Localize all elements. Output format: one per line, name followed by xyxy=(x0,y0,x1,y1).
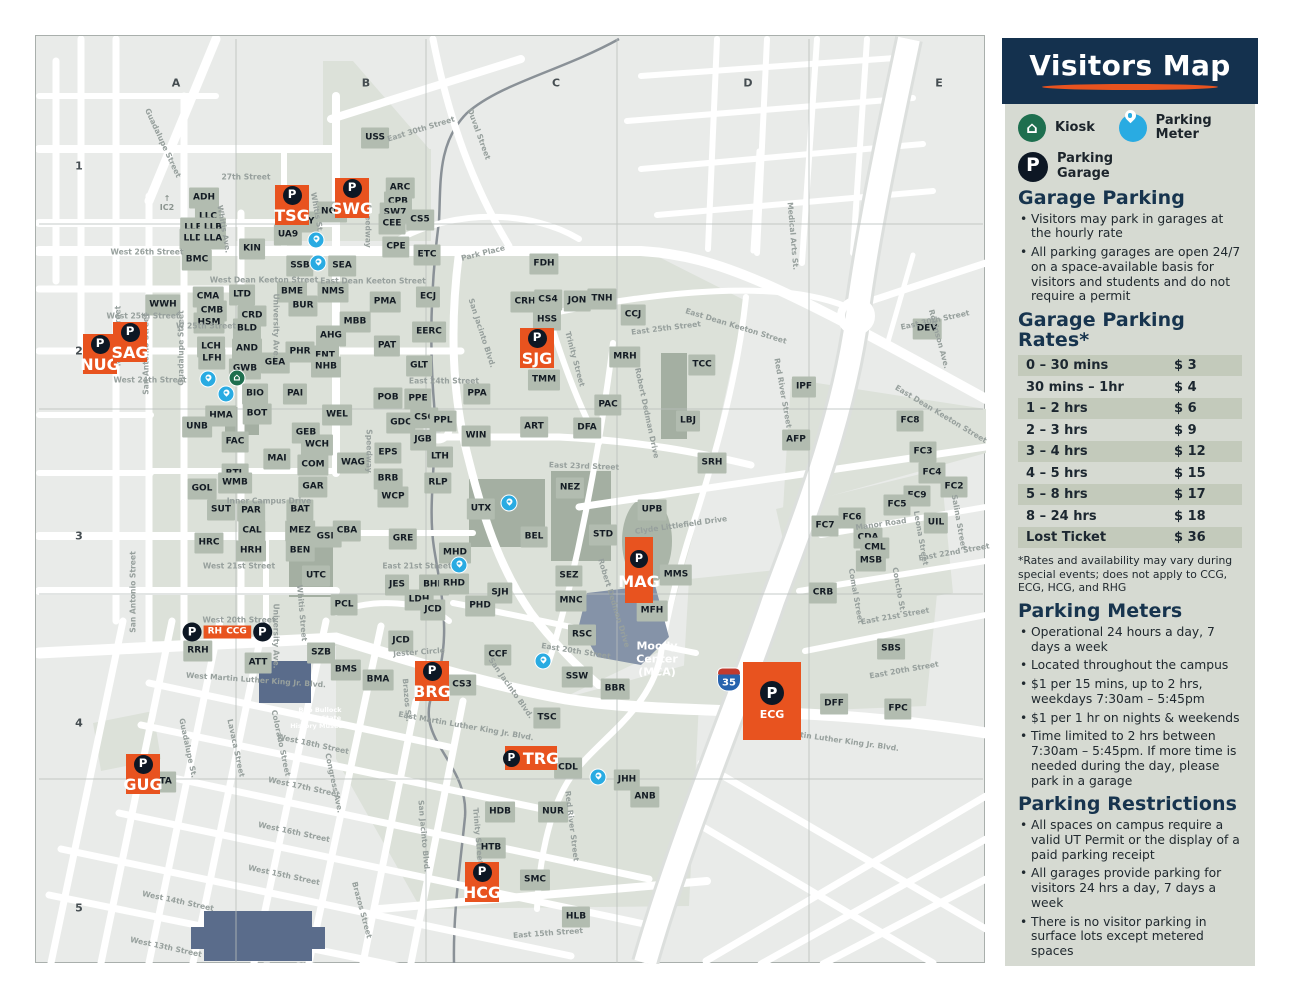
parking-meter-icon xyxy=(590,769,607,786)
building-label: FPC xyxy=(884,699,911,720)
garage-marker-hcg: PHCG xyxy=(465,862,499,902)
rate-row: 3 – 4 hrs$ 12 xyxy=(1018,441,1242,463)
building-label: FC5 xyxy=(883,495,910,516)
legend-item: ⌂Kiosk xyxy=(1018,114,1117,143)
building-label: BOT xyxy=(243,404,272,425)
building-label: PPL xyxy=(430,411,457,432)
building-label: CS4 xyxy=(534,290,562,311)
landmark-label: ↑ IC2 xyxy=(160,194,174,212)
building-label: COM xyxy=(297,455,328,476)
building-label: KIN xyxy=(239,239,265,260)
street-label: West 13th Street xyxy=(129,935,202,959)
garage-code-chip: CCG xyxy=(222,626,251,639)
rate-price: $ 9 xyxy=(1174,423,1234,438)
building-label: GOL xyxy=(188,479,217,500)
building-label: CS3 xyxy=(448,675,476,696)
rate-row: 5 – 8 hrs$ 17 xyxy=(1018,484,1242,506)
building-label: TMM xyxy=(528,370,560,391)
building-label: FC3 xyxy=(909,442,936,463)
street-label: West 16th Street xyxy=(257,820,330,844)
kiosk-icon: ⌂ xyxy=(1018,114,1046,142)
garage-code: SWG xyxy=(331,199,373,218)
parking-meter-icon xyxy=(535,653,552,670)
building-label: JCD xyxy=(420,600,445,621)
street-label: Red River Street xyxy=(563,790,581,861)
bullet-item: There is no visitor parking in surface l… xyxy=(1018,915,1242,959)
rate-duration: 4 – 5 hrs xyxy=(1026,466,1174,481)
building-label: EERC xyxy=(412,322,446,343)
legend-label: Parking Meter xyxy=(1156,114,1212,143)
building-label: PAC xyxy=(594,395,621,416)
garage-marker-ccg: CCGP xyxy=(222,623,272,642)
garage-rates-table: 0 – 30 mins$ 330 mins – 1hr$ 41 – 2 hrs$… xyxy=(1018,355,1242,549)
rate-row: 30 mins – 1hr$ 4 xyxy=(1018,376,1242,398)
rate-price: $ 17 xyxy=(1174,487,1234,502)
visitors-map-page: USSADHLLCLLELLBLLDLLABMCKINBWYUA9NOASSBS… xyxy=(0,0,1300,1005)
building-label: IPF xyxy=(792,377,816,398)
legend-label: Kiosk xyxy=(1055,121,1095,135)
parking-meter-icon xyxy=(501,495,518,512)
street-label: Congress Ave. xyxy=(323,752,344,813)
garage-code: BRG xyxy=(413,682,451,701)
rate-row: 1 – 2 hrs$ 6 xyxy=(1018,398,1242,420)
building-label: BLD xyxy=(233,319,261,340)
landmark-label: Texas State Capitol xyxy=(264,962,323,982)
bullet-item: Time limited to 2 hrs between 7:30am – 5… xyxy=(1018,729,1242,788)
parking-meter-icon xyxy=(310,255,327,272)
street-label: West 26th Street xyxy=(110,248,183,257)
building-label: WCP xyxy=(377,487,408,508)
street-label: Guadalupe St. xyxy=(177,717,198,778)
parking-garage-icon: P xyxy=(253,623,272,642)
garage-code: SJG xyxy=(522,349,553,368)
garage-parking-bullets: Visitors may park in garages at the hour… xyxy=(1018,212,1242,305)
street-label: East 30th Street xyxy=(386,114,456,143)
building-label: UNB xyxy=(182,417,212,438)
building-label: MNC xyxy=(555,591,586,612)
garage-marker-sjg: PSJG xyxy=(520,328,554,368)
grid-column-label: B xyxy=(362,77,370,90)
building-label: BIO xyxy=(242,384,268,405)
building-label: BUR xyxy=(288,296,317,317)
building-label: RRH xyxy=(183,641,212,662)
garage-code: TRG xyxy=(523,749,559,768)
grid-column-label: D xyxy=(743,77,752,90)
street-label: East 22nd Street xyxy=(918,541,990,562)
building-label: UTC xyxy=(302,566,330,587)
parking-garage-icon: P xyxy=(343,179,362,198)
building-label: SEA xyxy=(328,256,356,277)
street-label: Trinity Street xyxy=(563,330,586,387)
orange-swoosh-underline xyxy=(1040,83,1220,91)
shield-top-band xyxy=(717,668,741,675)
garage-code: HCG xyxy=(463,883,501,902)
rate-row: 4 – 5 hrs$ 15 xyxy=(1018,462,1242,484)
grid-row-label: 5 xyxy=(75,902,83,915)
parking-meter-icon xyxy=(1119,114,1147,142)
building-label: TCC xyxy=(688,355,715,376)
bullet-item: All parking garages are open 24/7 on a s… xyxy=(1018,245,1242,304)
building-label: GLT xyxy=(406,356,432,377)
building-label: BMC xyxy=(182,250,212,271)
landmark-label: Bob Bullock Texas State History Museum xyxy=(290,706,350,730)
street-label: Trinity Street xyxy=(471,807,485,864)
street-label: University Ave. xyxy=(272,604,281,669)
parking-garage-icon: P xyxy=(121,323,140,342)
garage-marker-mag: PMAG xyxy=(625,537,653,603)
legend-item: PParking Garage xyxy=(1018,152,1117,182)
building-label: BMA xyxy=(363,670,394,691)
parking-meter-icon xyxy=(308,232,325,249)
rate-duration: 1 – 2 hrs xyxy=(1026,401,1174,416)
building-label: PPA xyxy=(463,384,490,405)
garage-code: MAG xyxy=(618,572,659,591)
street-label: Inner Campus Drive xyxy=(227,497,312,506)
building-label: FC7 xyxy=(811,516,838,537)
rate-row: 8 – 24 hrs$ 18 xyxy=(1018,505,1242,527)
building-label: FC8 xyxy=(896,411,923,432)
rate-duration: 0 – 30 mins xyxy=(1026,358,1174,373)
parking-restrictions-bullets: All spaces on campus require a valid UT … xyxy=(1018,818,1242,959)
building-label: FDH xyxy=(529,254,558,275)
building-label: AHG xyxy=(316,326,346,347)
street-label: San Jacinto Blvd. xyxy=(487,656,536,720)
grid-row-label: 2 xyxy=(75,345,83,358)
street-label: Guadalupe Street xyxy=(143,107,183,179)
kiosk-icon: ⌂ xyxy=(229,370,246,387)
grid-column-label: E xyxy=(935,77,943,90)
building-label: UPB xyxy=(638,500,667,521)
garage-code: TSG xyxy=(274,206,310,225)
building-label: ART xyxy=(520,417,548,438)
building-label: ETC xyxy=(414,245,441,266)
building-label: PCL xyxy=(331,595,358,616)
rate-price: $ 6 xyxy=(1174,401,1234,416)
street-label: Brazos Street xyxy=(350,881,374,940)
street-label: Speedway xyxy=(365,429,374,473)
rate-duration: 5 – 8 hrs xyxy=(1026,487,1174,502)
building-label: POB xyxy=(373,388,402,409)
building-label: LBJ xyxy=(676,411,700,432)
bullet-item: Operational 24 hours a day, 7 days a wee… xyxy=(1018,625,1242,655)
street-label: Medical Arts St. xyxy=(786,202,801,271)
rate-price: $ 18 xyxy=(1174,509,1234,524)
building-label: CPE xyxy=(382,237,409,258)
parking-garage-icon: P xyxy=(473,863,492,882)
building-label: CEE xyxy=(379,214,406,235)
street-label: East 21st Street xyxy=(860,606,930,627)
building-label: UA9 xyxy=(274,225,302,246)
street-label: Salina Street xyxy=(950,494,969,550)
rate-row: Lost Ticket$ 36 xyxy=(1018,527,1242,549)
building-label: USS xyxy=(361,128,389,149)
building-label: NUR xyxy=(538,802,568,823)
building-label: FAC xyxy=(222,432,249,453)
bullet-item: Located throughout the campus xyxy=(1018,658,1242,673)
shield-route-number: 35 xyxy=(717,675,741,692)
building-label: ATT xyxy=(245,653,272,674)
building-label: HDB xyxy=(485,802,515,823)
street-label: West 21st Street xyxy=(203,562,275,571)
garage-marker-swg: PSWG xyxy=(335,178,369,218)
building-label: NHB xyxy=(311,357,341,378)
parking-meter-icon xyxy=(451,557,468,574)
building-label: JON xyxy=(564,291,591,312)
building-label: HLB xyxy=(562,907,590,928)
street-label: University Ave. xyxy=(272,294,281,359)
bullet-item: $1 per 15 mins, up to 2 hrs, weekdays 7:… xyxy=(1018,677,1242,707)
building-label: SBS xyxy=(877,639,905,660)
building-label: MRH xyxy=(609,347,640,368)
street-label: East Martin Luther King Jr. Blvd. xyxy=(398,710,535,743)
building-label: HRC xyxy=(194,533,223,554)
parking-garage-icon: P xyxy=(134,755,153,774)
garage-marker-brg: PBRG xyxy=(415,661,449,701)
building-label: CAL xyxy=(238,521,265,542)
street-label: Lavaca Street xyxy=(225,718,246,778)
building-label: CCJ xyxy=(621,305,646,326)
grid-column-label: A xyxy=(172,77,181,90)
parking-restrictions-heading: Parking Restrictions xyxy=(1018,795,1242,815)
grid-row-label: 1 xyxy=(75,160,83,173)
building-label: SEZ xyxy=(555,566,582,587)
building-label: DFA xyxy=(573,418,601,439)
building-label: RLP xyxy=(424,473,451,494)
building-label: SRH xyxy=(698,453,727,474)
street-label: San Jacinto Blvd. xyxy=(416,800,431,873)
landmark-label: Moody Center (MCA) xyxy=(636,640,678,679)
street-label: East 15th Street xyxy=(513,926,584,940)
info-panel: Visitors Map ⌂KioskParking MeterPParking… xyxy=(1005,38,1255,966)
parking-garage-icon: P xyxy=(503,750,520,767)
grid-row-label: 4 xyxy=(75,717,83,730)
street-label: Guadalupe Street xyxy=(177,310,186,385)
rates-footnote: *Rates and availability may vary during … xyxy=(1018,554,1242,594)
parking-meters-heading: Parking Meters xyxy=(1018,602,1242,622)
interstate-35-shield: 35 xyxy=(717,668,741,693)
rate-row: 0 – 30 mins$ 3 xyxy=(1018,355,1242,377)
street-label: Comal Street xyxy=(847,568,866,625)
building-label: PAT xyxy=(374,336,400,357)
building-label: MMS xyxy=(660,565,692,586)
building-label: CRB xyxy=(809,583,837,604)
parking-meter-icon xyxy=(218,386,235,403)
bullet-item: $1 per 1 hr on nights & weekends xyxy=(1018,711,1242,726)
garage-parking-heading: Garage Parking xyxy=(1018,189,1242,209)
garage-code: ECG xyxy=(760,708,785,721)
parking-garage-icon: P xyxy=(183,623,202,642)
street-label: East 24th Street xyxy=(409,377,479,386)
map-legend: ⌂KioskParking MeterPParking Garage xyxy=(1018,114,1242,182)
parking-garage-icon: P xyxy=(283,186,302,205)
garage-code: SAG xyxy=(111,343,148,362)
bullet-item: All garages provide parking for visitors… xyxy=(1018,866,1242,910)
street-label: East Dean Keeton Street xyxy=(320,277,425,286)
street-label: West 14th Street xyxy=(141,889,214,913)
parking-garage-icon: P xyxy=(423,662,442,681)
parking-meters-bullets: Operational 24 hours a day, 7 days a wee… xyxy=(1018,625,1242,789)
rate-duration: 30 mins – 1hr xyxy=(1026,380,1174,395)
rate-price: $ 36 xyxy=(1174,530,1234,545)
building-label: PPE xyxy=(404,389,431,410)
building-label: BEN xyxy=(286,541,315,562)
building-label: PMA xyxy=(370,292,401,313)
street-label: East 23rd Street xyxy=(549,460,620,471)
rate-duration: 3 – 4 hrs xyxy=(1026,444,1174,459)
rate-duration: 2 – 3 hrs xyxy=(1026,423,1174,438)
building-label: SMC xyxy=(520,870,550,891)
building-label: MFH xyxy=(637,601,668,622)
street-label: East 20th Street xyxy=(869,659,940,680)
parking-garage-icon: P xyxy=(91,335,110,354)
building-label: PAI xyxy=(283,384,307,405)
rate-duration: 8 – 24 hrs xyxy=(1026,509,1174,524)
map-annotation-layer: USSADHLLCLLELLBLLDLLABMCKINBWYUA9NOASSBS… xyxy=(36,36,986,964)
building-label: WIN xyxy=(462,426,491,447)
building-label: GAR xyxy=(298,477,327,498)
garage-marker-ecg: PECG xyxy=(743,662,801,740)
building-label: ECJ xyxy=(416,287,440,308)
building-label: CBA xyxy=(333,521,361,542)
building-label: MSB xyxy=(856,551,886,572)
garage-marker-trg: PTRG xyxy=(505,746,557,770)
building-label: BMS xyxy=(331,660,361,681)
bullet-item: Visitors may park in garages at the hour… xyxy=(1018,212,1242,242)
building-label: TNH xyxy=(587,289,616,310)
building-label: MAI xyxy=(263,449,290,470)
garage-marker-gug: PGUG xyxy=(126,754,160,794)
grid-row-label: 3 xyxy=(75,530,83,543)
building-label: RSC xyxy=(568,625,596,646)
building-label: LTH xyxy=(427,447,453,468)
legend-item: Parking Meter xyxy=(1119,114,1242,143)
building-label: LTD xyxy=(229,285,255,306)
building-label: BBR xyxy=(601,679,630,700)
building-label: NEZ xyxy=(556,478,584,499)
street-label: Duval Street xyxy=(466,107,493,161)
building-label: LFH xyxy=(198,349,225,370)
rate-price: $ 15 xyxy=(1174,466,1234,481)
building-label: ANB xyxy=(630,787,659,808)
garage-code: GUG xyxy=(123,775,162,794)
parking-garage-icon: P xyxy=(760,681,784,705)
page-title: Visitors Map xyxy=(1029,52,1230,80)
building-label: WCH xyxy=(301,435,333,456)
legend-label: Parking Garage xyxy=(1057,152,1113,181)
building-label: RHD xyxy=(439,574,469,595)
building-label: TSC xyxy=(533,708,560,729)
panel-header: Visitors Map xyxy=(1002,38,1258,104)
garage-marker-sag: PSAG xyxy=(113,322,147,362)
bullet-item: All spaces on campus require a valid UT … xyxy=(1018,818,1242,862)
rate-price: $ 3 xyxy=(1174,358,1234,373)
grid-column-label: C xyxy=(552,77,560,90)
parking-garage-icon: P xyxy=(630,550,648,568)
street-label: Park Place xyxy=(460,243,506,263)
building-label: DFF xyxy=(820,694,848,715)
building-label: SSW xyxy=(562,667,593,688)
street-label: East 21st Street xyxy=(382,562,451,571)
street-label: West 15th Street xyxy=(247,863,320,887)
street-label: Robert Dedman Drive xyxy=(633,367,661,459)
garage-rates-heading: Garage Parking Rates* xyxy=(1018,311,1242,351)
building-label: STD xyxy=(589,525,617,546)
building-label: PHD xyxy=(465,596,495,617)
street-label: West Dean Keeton Street xyxy=(210,276,318,285)
building-label: HRH xyxy=(236,541,266,562)
parking-garage-icon: P xyxy=(528,329,547,348)
street-label: San Jacinto Blvd. xyxy=(467,297,498,369)
building-label: GRE xyxy=(389,529,417,550)
building-label: AFP xyxy=(782,430,810,451)
rate-price: $ 4 xyxy=(1174,380,1234,395)
garage-marker-tsg: PTSG xyxy=(275,185,309,225)
building-label: CS5 xyxy=(406,210,434,231)
building-label: WMB xyxy=(218,473,252,494)
rate-row: 2 – 3 hrs$ 9 xyxy=(1018,419,1242,441)
street-label: Concho St. xyxy=(891,567,908,614)
building-label: AND xyxy=(232,339,262,360)
rate-duration: Lost Ticket xyxy=(1026,530,1174,545)
building-label: BEL xyxy=(521,527,548,548)
street-label: San Antonio Street xyxy=(129,551,138,632)
building-label: UIL xyxy=(924,513,948,534)
parking-garage-icon: P xyxy=(1018,152,1048,182)
building-label: WEL xyxy=(322,405,352,426)
building-label: EPS xyxy=(374,443,401,464)
campus-map: USSADHLLCLLELLBLLDLLABMCKINBWYUA9NOASSBS… xyxy=(35,35,985,963)
building-label: UTX xyxy=(467,499,495,520)
panel-body: ⌂KioskParking MeterPParking Garage Garag… xyxy=(1005,104,1255,966)
street-label: 27th Street xyxy=(221,173,270,182)
parking-meter-icon xyxy=(200,371,217,388)
rate-price: $ 12 xyxy=(1174,444,1234,459)
street-label: Red River Street xyxy=(772,357,793,428)
street-label: Whitis Street xyxy=(295,584,309,641)
building-label: MEZ xyxy=(285,521,315,542)
